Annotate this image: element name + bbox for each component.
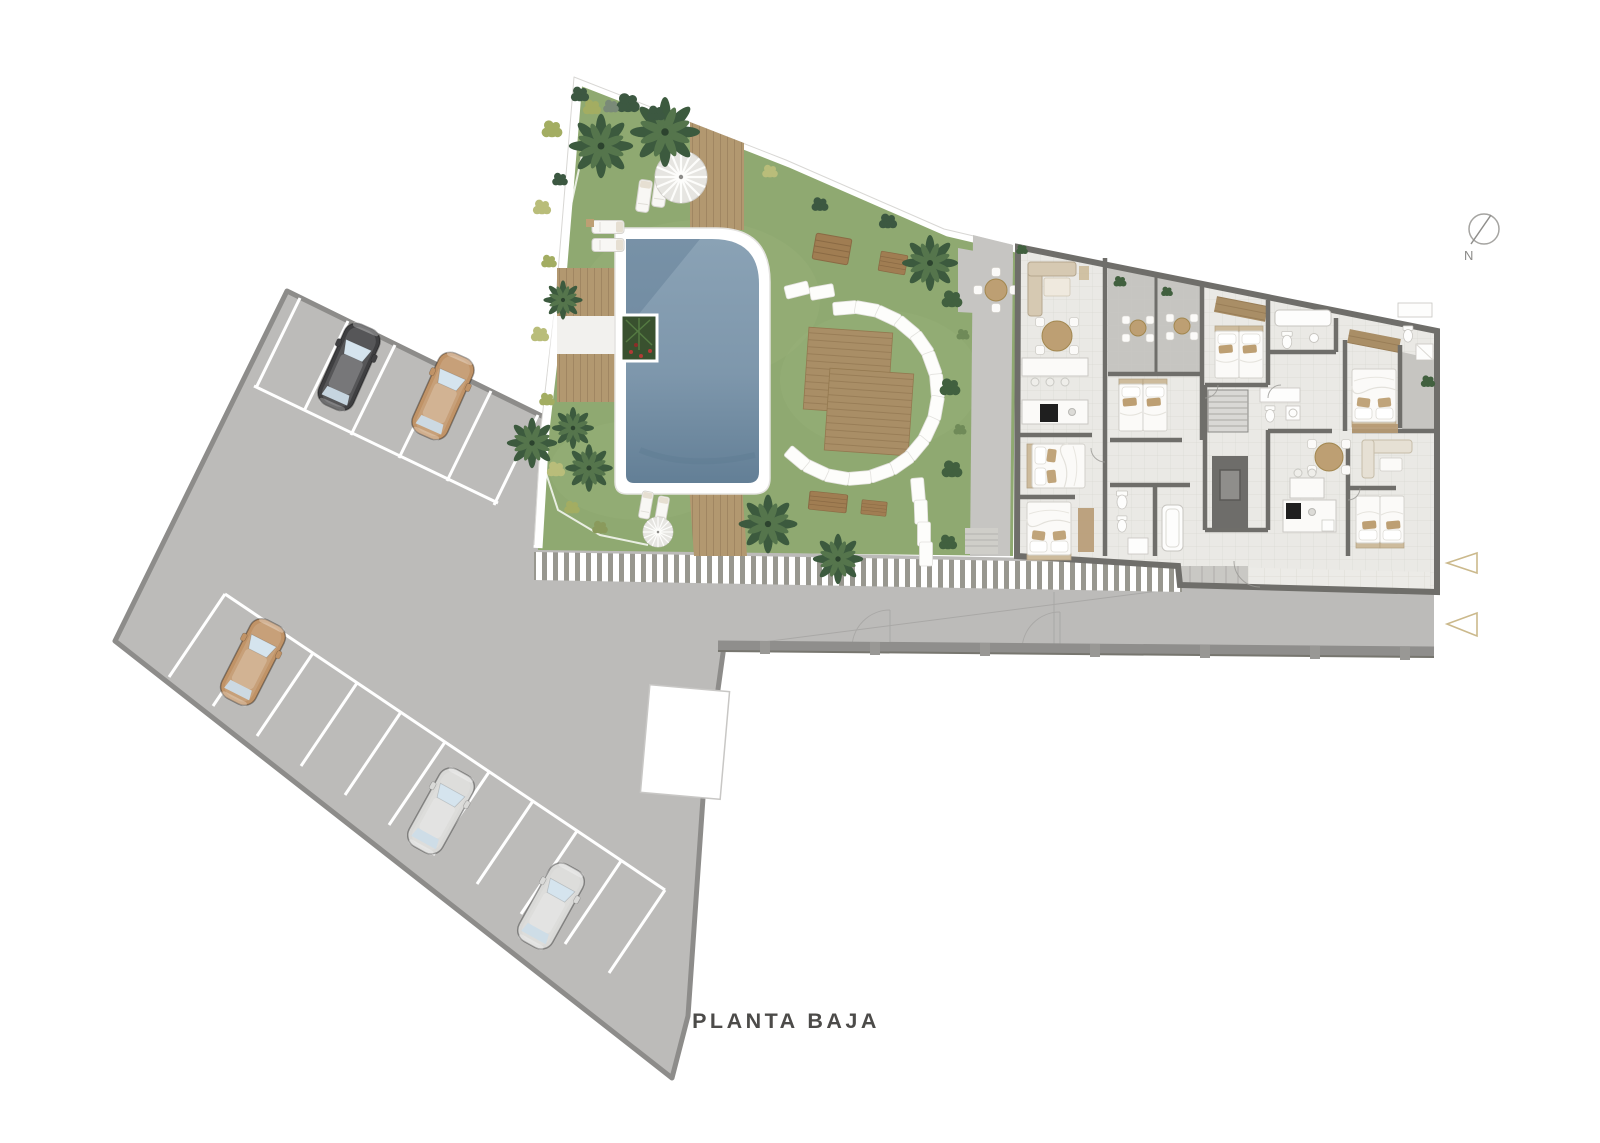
stove — [1040, 404, 1058, 422]
plan-title: PLANTA BAJA — [692, 1009, 880, 1033]
stove-c — [1286, 503, 1301, 519]
entrance-arrows — [1447, 553, 1477, 636]
bed-twin-c-2 — [1239, 326, 1263, 378]
bed-twin-b-1 — [1119, 379, 1143, 431]
north-label: N — [1464, 248, 1473, 263]
parking-ramp-notch — [640, 685, 729, 800]
site-plan-canvas: N PLANTA BAJA — [0, 0, 1600, 1143]
bed-twin-b-2 — [1143, 379, 1167, 431]
entrance-arrow-1 — [1447, 553, 1477, 573]
bed-unit-a-2 — [1027, 502, 1071, 560]
entrance-arrow-2 — [1447, 613, 1477, 636]
bed-twin-e-1 — [1356, 496, 1380, 548]
elevator — [1212, 456, 1248, 528]
gravel-terrace — [958, 248, 1013, 315]
bed-twin-e-2 — [1380, 496, 1404, 548]
bed-double-d — [1352, 369, 1396, 427]
terrace-2 — [1402, 352, 1437, 431]
bed-twin-c-1 — [1215, 326, 1239, 378]
building — [1016, 245, 1437, 592]
bench-unit-a — [1078, 508, 1094, 552]
stair-core — [1208, 390, 1248, 432]
path-steps — [965, 528, 998, 554]
parasol-small — [643, 517, 673, 547]
bench-d — [1352, 424, 1398, 433]
dining-table-unit-a — [1036, 318, 1079, 355]
bed-unit-a-1 — [1027, 444, 1085, 488]
north-indicator: N — [1464, 214, 1499, 263]
planter-box — [621, 315, 657, 361]
